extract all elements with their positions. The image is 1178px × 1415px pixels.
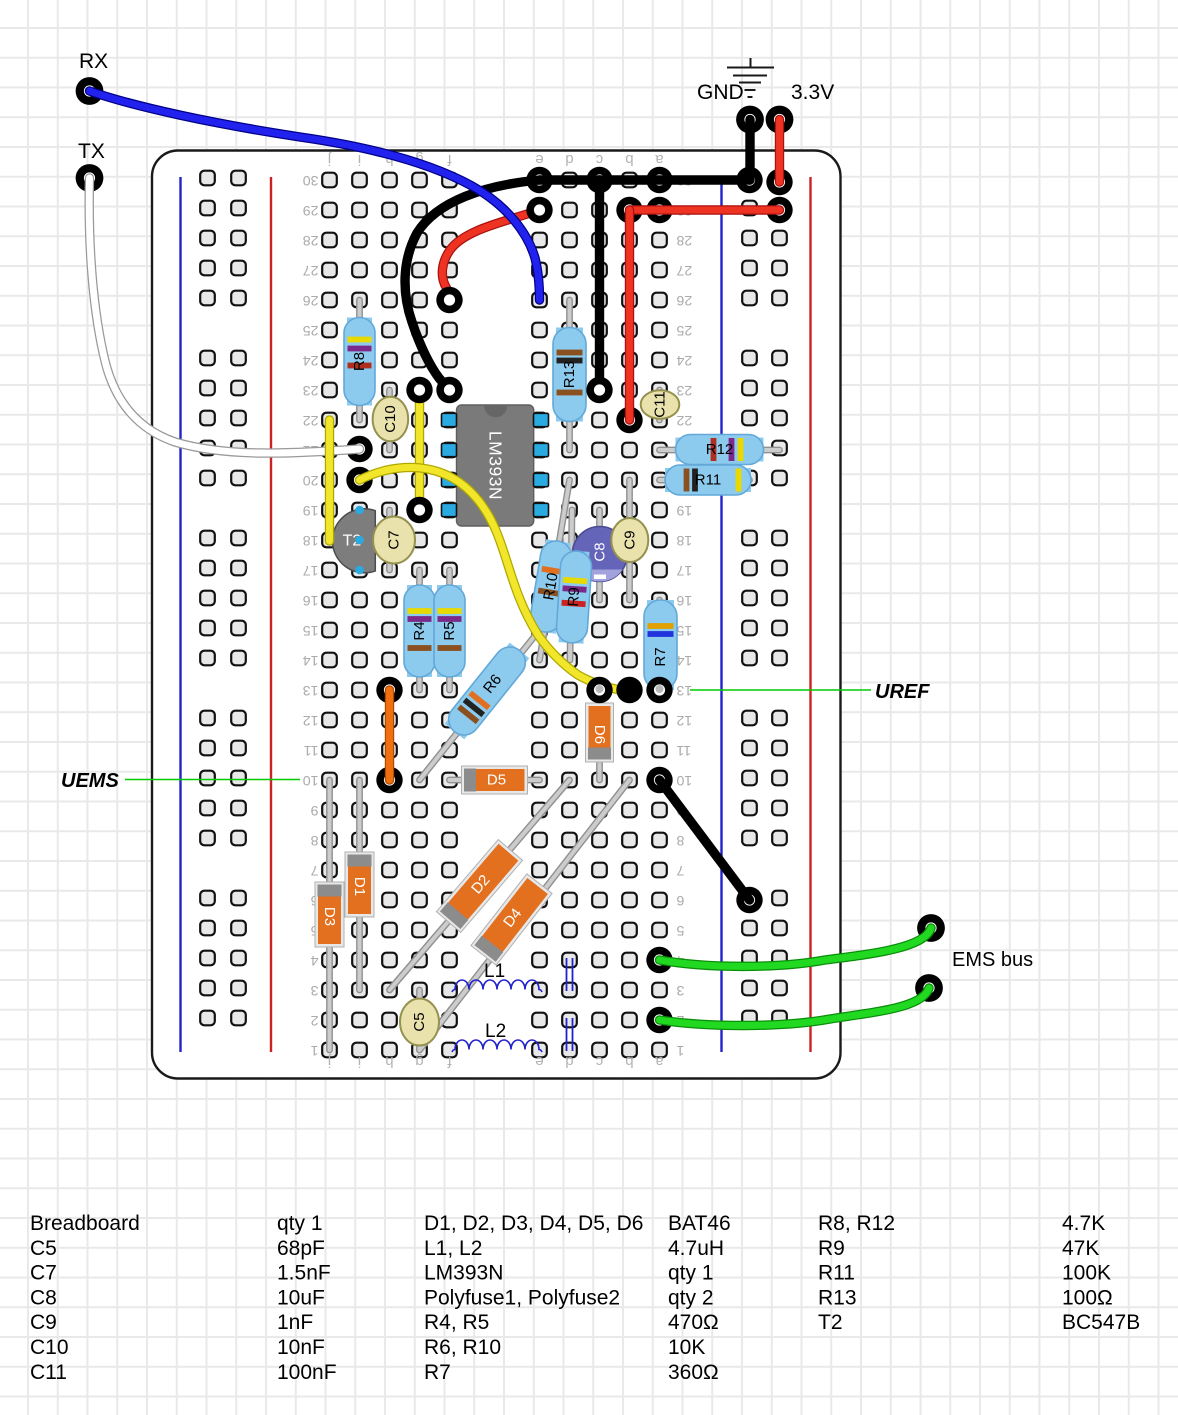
svg-text:24: 24 [676,352,692,368]
svg-text:13: 13 [676,682,692,698]
svg-text:360Ω: 360Ω [668,1361,719,1384]
svg-text:GND: GND [697,81,744,104]
svg-text:d: d [565,151,573,168]
svg-text:16: 16 [303,592,319,608]
svg-text:qty 1: qty 1 [668,1262,714,1285]
svg-text:10uF: 10uF [277,1286,325,1309]
svg-text:28: 28 [676,232,692,248]
svg-text:R11: R11 [695,472,721,489]
svg-text:a: a [655,1053,664,1070]
svg-text:R13: R13 [818,1286,857,1309]
svg-text:D1, D2, D3, D4, D5, D6: D1, D2, D3, D4, D5, D6 [424,1212,643,1235]
svg-text:UREF: UREF [875,681,930,703]
svg-text:10: 10 [303,772,319,788]
svg-text:e: e [535,151,543,168]
svg-text:C8: C8 [30,1286,57,1309]
svg-text:15: 15 [303,622,319,638]
svg-text:RX: RX [79,50,108,73]
svg-text:R12: R12 [706,441,734,458]
svg-text:R9: R9 [818,1237,845,1260]
svg-text:C9: C9 [621,530,638,549]
svg-text:27: 27 [303,262,319,278]
svg-text:26: 26 [303,292,319,308]
svg-text:23: 23 [676,382,692,398]
svg-text:R8, R12: R8, R12 [818,1212,895,1235]
svg-text:27: 27 [676,262,692,278]
svg-text:12: 12 [303,712,319,728]
svg-text:24: 24 [303,352,319,368]
svg-text:28: 28 [303,232,319,248]
svg-text:UEMS: UEMS [61,770,119,792]
svg-text:R9: R9 [565,587,583,607]
svg-text:100Ω: 100Ω [1062,1286,1113,1309]
svg-text:g: g [415,1053,423,1070]
svg-text:C7: C7 [386,530,403,549]
svg-text:18: 18 [303,532,319,548]
svg-text:17: 17 [303,562,319,578]
svg-text:11: 11 [304,742,319,758]
svg-text:10: 10 [676,772,692,788]
svg-text:C10: C10 [30,1336,69,1359]
svg-text:C11: C11 [652,391,669,417]
svg-text:C10: C10 [382,405,399,433]
svg-text:3: 3 [676,982,684,998]
svg-text:i: i [358,1053,361,1070]
svg-text:19: 19 [676,502,692,518]
svg-text:i: i [358,151,361,168]
svg-text:R6, R10: R6, R10 [424,1336,501,1359]
svg-text:C7: C7 [30,1262,57,1285]
svg-text:C11: C11 [30,1361,67,1384]
svg-text:29: 29 [303,202,319,218]
svg-text:Polyfuse1, Polyfuse2: Polyfuse1, Polyfuse2 [424,1286,620,1309]
svg-text:14: 14 [303,652,319,668]
svg-text:25: 25 [676,322,692,338]
svg-text:16: 16 [676,592,692,608]
svg-text:D1: D1 [351,877,368,896]
svg-text:15: 15 [676,622,692,638]
svg-text:D3: D3 [321,907,338,926]
svg-text:h: h [385,1053,393,1070]
svg-text:100K: 100K [1062,1262,1111,1285]
svg-text:12: 12 [676,712,692,728]
svg-text:17: 17 [676,562,692,578]
svg-text:D6: D6 [591,725,608,744]
svg-text:23: 23 [303,382,319,398]
svg-text:C8: C8 [591,542,608,561]
svg-text:470Ω: 470Ω [668,1311,719,1334]
svg-text:14: 14 [676,652,692,668]
svg-text:T2: T2 [818,1311,843,1334]
svg-text:BAT46: BAT46 [668,1212,731,1235]
svg-text:5: 5 [676,922,684,938]
svg-text:10nF: 10nF [277,1336,325,1359]
svg-text:4.7uH: 4.7uH [668,1237,724,1260]
svg-text:13: 13 [303,682,319,698]
svg-text:7: 7 [676,862,684,878]
svg-text:2: 2 [311,1012,319,1028]
svg-text:68pF: 68pF [277,1237,325,1260]
svg-text:6: 6 [676,892,684,908]
svg-text:22: 22 [303,412,319,428]
svg-text:30: 30 [303,172,319,188]
svg-text:R7: R7 [424,1361,451,1384]
svg-text:b: b [625,1053,633,1070]
svg-text:22: 22 [676,412,692,428]
svg-text:c: c [595,151,603,168]
svg-text:Breadboard: Breadboard [30,1212,140,1235]
svg-text:9: 9 [311,802,319,818]
svg-text:L2: L2 [485,1021,506,1042]
svg-text:10K: 10K [668,1336,705,1359]
svg-text:R7: R7 [652,647,669,666]
svg-text:LM393N: LM393N [424,1262,503,1285]
svg-text:R11: R11 [818,1262,855,1285]
svg-text:100nF: 100nF [277,1361,337,1384]
svg-text:4.7K: 4.7K [1062,1212,1105,1235]
svg-text:R4: R4 [411,621,428,640]
svg-text:1: 1 [676,1042,684,1058]
svg-text:8: 8 [311,832,319,848]
svg-text:19: 19 [303,502,319,518]
svg-text:3.3V: 3.3V [791,81,834,104]
svg-text:3: 3 [311,982,319,998]
svg-text:LM393N: LM393N [486,431,506,500]
svg-text:e: e [535,1053,543,1070]
svg-text:26: 26 [676,292,692,308]
svg-text:BC547B: BC547B [1062,1311,1140,1334]
svg-text:1.5nF: 1.5nF [277,1262,331,1285]
svg-text:L1, L2: L1, L2 [424,1237,482,1260]
svg-text:C5: C5 [411,1012,428,1031]
svg-text:d: d [565,1053,573,1070]
svg-text:b: b [625,151,633,168]
svg-text:j: j [328,1053,332,1070]
svg-text:C9: C9 [30,1311,57,1334]
svg-text:R4, R5: R4, R5 [424,1311,489,1334]
svg-text:qty 2: qty 2 [668,1286,714,1309]
svg-text:47K: 47K [1062,1237,1099,1260]
svg-text:20: 20 [303,472,319,488]
svg-text:R13: R13 [561,361,578,389]
svg-text:D5: D5 [487,772,506,789]
svg-text:4: 4 [311,952,319,968]
svg-text:R5: R5 [441,621,458,640]
svg-text:7: 7 [311,862,319,878]
svg-text:c: c [595,1053,603,1070]
svg-text:8: 8 [676,832,684,848]
svg-text:TX: TX [78,140,105,163]
svg-text:25: 25 [303,322,319,338]
svg-text:j: j [328,151,332,168]
svg-text:11: 11 [676,742,691,758]
svg-text:18: 18 [676,532,692,548]
svg-text:L1: L1 [484,961,505,982]
svg-text:C5: C5 [30,1237,57,1260]
svg-text:1nF: 1nF [277,1311,313,1334]
svg-text:1: 1 [311,1042,319,1058]
svg-text:EMS bus: EMS bus [952,949,1033,971]
svg-text:R8: R8 [351,352,368,371]
svg-text:a: a [655,151,664,168]
svg-text:qty 1: qty 1 [277,1212,323,1235]
